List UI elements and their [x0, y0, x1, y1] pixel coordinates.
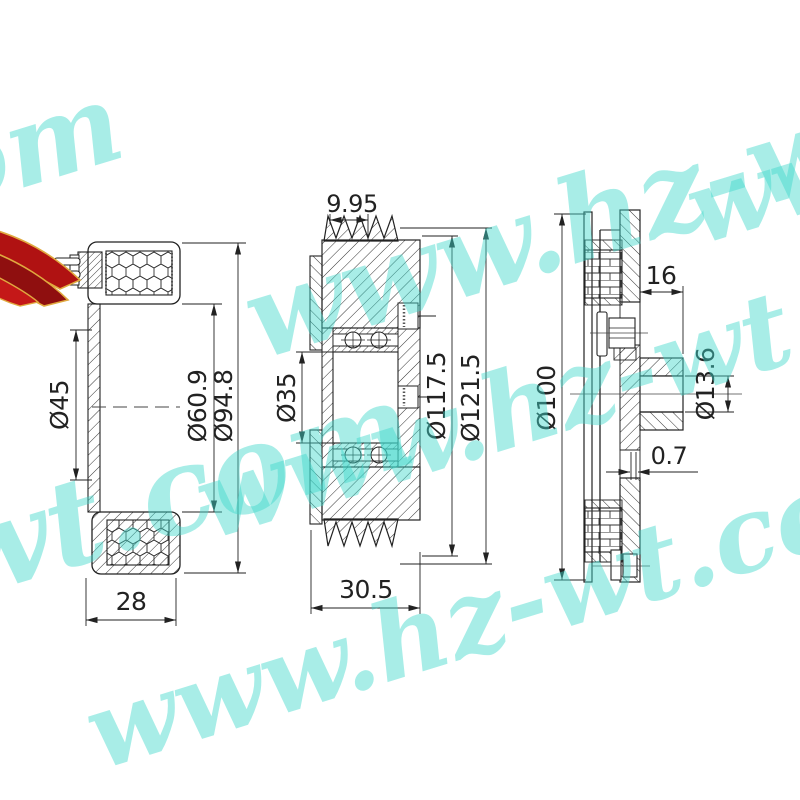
watermark-layer: www.hz-wt.com www.hz-wt.com www.hz-wt.co…	[0, 0, 800, 794]
dim-label-air-gap: 0.7	[651, 442, 688, 470]
technical-drawing-canvas: Ø45 Ø60.9 Ø94.8 28	[0, 0, 800, 800]
red-ribbon-logo	[0, 228, 80, 306]
dim-label-coil-bore: Ø45	[45, 380, 74, 430]
dim-label-coil-width: 28	[116, 587, 147, 616]
coil-winding-top	[106, 251, 172, 295]
